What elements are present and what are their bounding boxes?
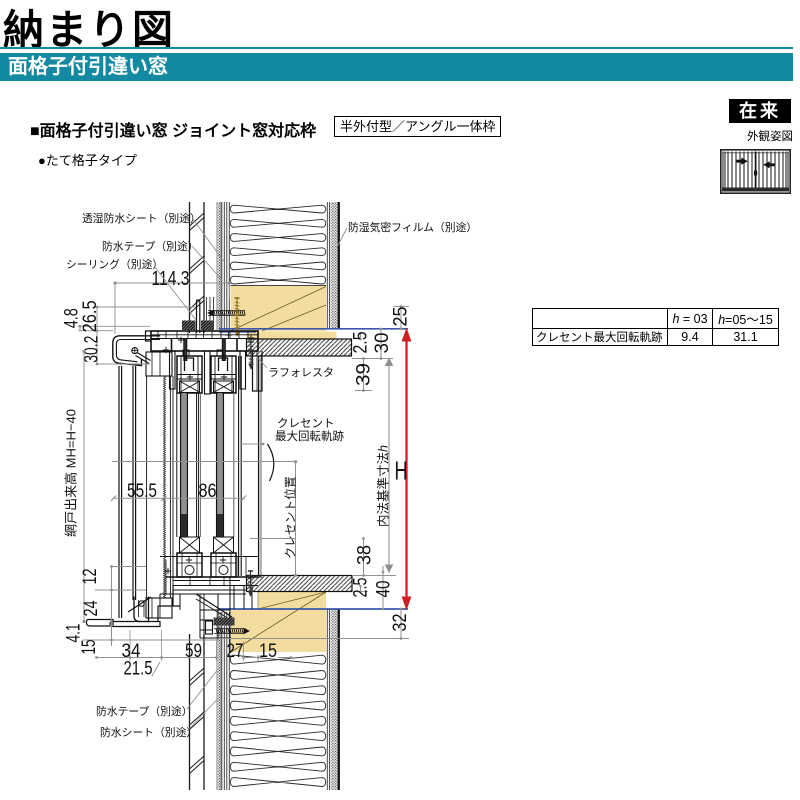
svg-text:25: 25 [390, 306, 412, 326]
svg-text:30: 30 [371, 332, 393, 353]
svg-text:クレセント: クレセント [277, 417, 335, 430]
svg-text:55.5: 55.5 [127, 480, 157, 502]
svg-text:2.5: 2.5 [350, 331, 372, 353]
svg-text:ラフォレスタ: ラフォレスタ [268, 366, 334, 379]
svg-text:2.5: 2.5 [350, 577, 372, 597]
svg-text:防水シート（別途）: 防水シート（別途） [100, 725, 197, 739]
svg-text:21.5: 21.5 [124, 658, 153, 680]
svg-text:最大回転軌跡: 最大回転軌跡 [275, 429, 344, 443]
svg-text:27: 27 [227, 640, 244, 662]
svg-text:H: H [395, 456, 408, 486]
svg-text:網戸出来高 MH=H−40: 網戸出来高 MH=H−40 [64, 409, 79, 537]
svg-text:59: 59 [185, 640, 202, 662]
svg-text:防湿気密フィルム（別途）: 防湿気密フィルム（別途） [348, 220, 477, 234]
svg-text:防水テープ（別途）: 防水テープ（別途） [96, 704, 193, 718]
svg-text:38: 38 [354, 545, 376, 565]
svg-text:透湿防水シート（別途）: 透湿防水シート（別途） [82, 211, 201, 225]
svg-text:防水テープ（別途）: 防水テープ（別途） [102, 239, 199, 253]
svg-text:15: 15 [78, 639, 100, 654]
svg-text:26.5: 26.5 [79, 300, 101, 332]
svg-text:32: 32 [389, 614, 411, 632]
svg-text:12: 12 [79, 569, 101, 585]
svg-text:内法基準寸法h: 内法基準寸法h [376, 445, 391, 527]
svg-text:40: 40 [373, 580, 395, 597]
svg-text:15: 15 [259, 640, 277, 662]
svg-text:24: 24 [80, 600, 102, 616]
svg-text:86: 86 [199, 480, 217, 502]
svg-text:シーリング（別途）: シーリング（別途） [66, 257, 163, 271]
svg-text:クレセント位置: クレセント位置 [284, 476, 298, 559]
svg-text:39: 39 [353, 363, 375, 386]
